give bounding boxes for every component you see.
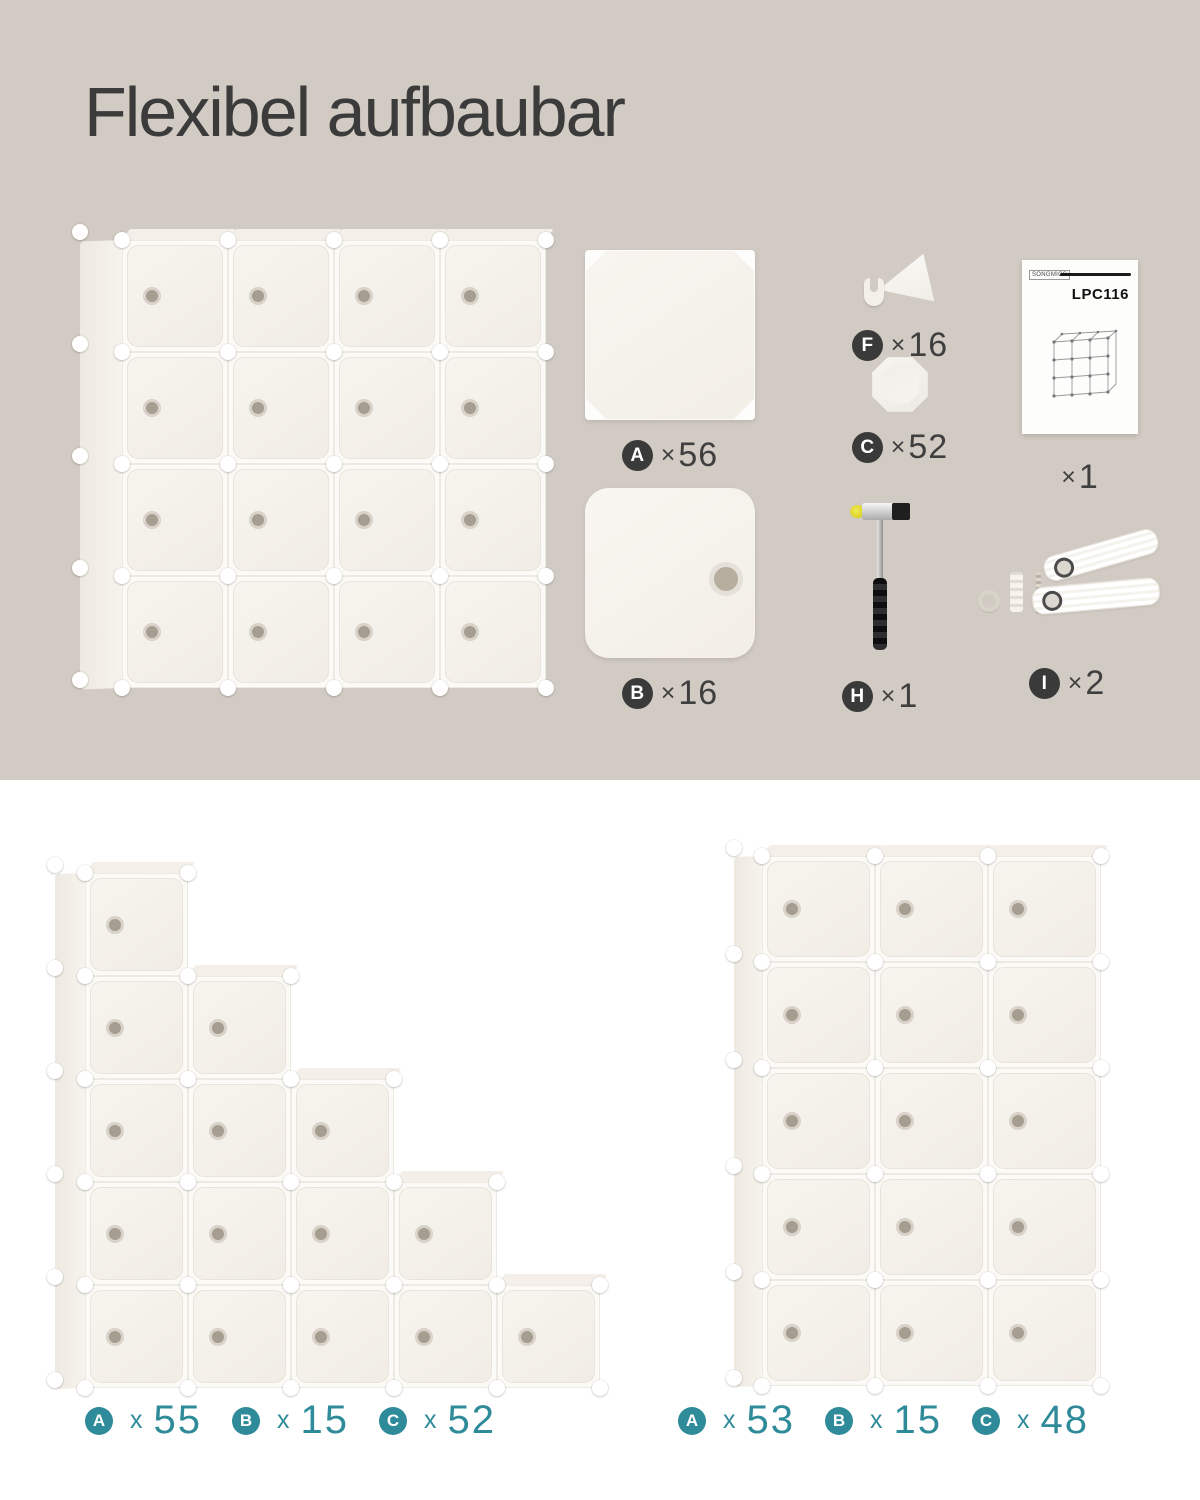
connector-dot xyxy=(867,1272,883,1288)
cube-door xyxy=(90,878,183,971)
multiply-symbol: x xyxy=(277,1406,290,1435)
shelf-top-panel xyxy=(988,845,1109,856)
cube-cell xyxy=(762,1068,875,1174)
door-handle-icon xyxy=(312,1328,330,1346)
cube-cell xyxy=(291,1079,394,1182)
connector-dot xyxy=(754,848,770,864)
door-handle-icon xyxy=(461,399,479,417)
cube-door xyxy=(127,245,223,347)
connector-dot xyxy=(326,344,342,360)
connector-dot xyxy=(538,232,554,248)
part-count: 55 xyxy=(154,1398,203,1443)
cube-cell xyxy=(122,352,228,464)
cube-door xyxy=(399,1290,492,1383)
cube-door xyxy=(993,1073,1096,1169)
door-handle-icon xyxy=(143,287,161,305)
strap-icon xyxy=(1031,576,1161,615)
cube-cell xyxy=(122,240,228,352)
connector-dot xyxy=(47,857,63,873)
straps-image xyxy=(972,540,1162,628)
door-handle-icon xyxy=(1009,1218,1027,1236)
connector-dot xyxy=(432,232,448,248)
connector-dot xyxy=(77,1071,93,1087)
cube-cell xyxy=(291,1182,394,1285)
legend-item-b: B x 15 xyxy=(232,1398,349,1443)
door-handle-icon xyxy=(249,287,267,305)
connector-dot xyxy=(114,568,130,584)
multiply-symbol: x xyxy=(870,1406,883,1435)
bottom-section: A x 55 B x 15 C x 52 A x 53 B x 15 C x xyxy=(0,780,1200,1500)
door-handle-icon xyxy=(209,1328,227,1346)
part-count: 53 xyxy=(747,1398,796,1443)
door-handle-icon xyxy=(415,1225,433,1243)
multiply-symbol: x xyxy=(723,1406,736,1435)
connector-dot xyxy=(489,1380,505,1396)
cube-cell xyxy=(988,962,1101,1068)
cube-door xyxy=(193,1084,286,1177)
connector-dot xyxy=(1093,1272,1109,1288)
cube-cell xyxy=(988,1174,1101,1280)
connector-dot xyxy=(1093,1378,1109,1394)
door-handle-icon xyxy=(1009,900,1027,918)
cube-cell xyxy=(440,352,546,464)
connector-dot xyxy=(220,568,236,584)
connector-dot xyxy=(538,568,554,584)
door-handle-icon xyxy=(896,1112,914,1130)
connector-dot xyxy=(432,456,448,472)
cube-cell xyxy=(188,1285,291,1388)
door-handle-icon xyxy=(355,623,373,641)
manual-header-line xyxy=(1060,273,1131,276)
door-handle-icon xyxy=(106,1122,124,1140)
connector-dot xyxy=(1093,954,1109,970)
connector-dot xyxy=(432,344,448,360)
cube-cell xyxy=(497,1285,600,1388)
cube-cell xyxy=(334,464,440,576)
hammer-label: H × 1 xyxy=(842,677,919,716)
cube-door xyxy=(193,981,286,1074)
multiply-symbol: × xyxy=(1068,669,1083,698)
door-handle-icon xyxy=(461,511,479,529)
tower-legend: A x 53 B x 15 C x 48 xyxy=(678,1398,1119,1443)
connector-dot xyxy=(114,232,130,248)
shelf-top-panel xyxy=(122,229,236,240)
letter-badge: A xyxy=(678,1407,706,1435)
door-handle-icon xyxy=(355,287,373,305)
connector-dot xyxy=(77,1277,93,1293)
cube-door xyxy=(296,1187,389,1280)
door-handle-icon xyxy=(461,623,479,641)
cube-door xyxy=(445,245,541,347)
connector-dot xyxy=(47,1166,63,1182)
connector-dot xyxy=(72,672,88,688)
connector-f-notch xyxy=(870,277,878,292)
cube-cell xyxy=(334,240,440,352)
connector-dot xyxy=(180,1380,196,1396)
connector-dot xyxy=(114,456,130,472)
connector-c-image xyxy=(840,356,960,416)
shelf-top-panel xyxy=(762,845,883,856)
cube-cell xyxy=(85,1079,188,1182)
door-handle-icon xyxy=(783,900,801,918)
cube-door xyxy=(90,1187,183,1280)
part-straps: I × 2 xyxy=(972,540,1162,703)
part-count: 15 xyxy=(894,1398,943,1443)
legend-item-b: B x 15 xyxy=(825,1398,942,1443)
cube-door xyxy=(445,357,541,459)
legend-item-c: C x 52 xyxy=(379,1398,496,1443)
cube-door xyxy=(233,245,329,347)
connector-dot xyxy=(283,1380,299,1396)
cube-door xyxy=(767,1179,870,1275)
connector-dot xyxy=(180,1174,196,1190)
top-section: Flexibel aufbaubar A × 56 B × 16 xyxy=(0,0,1200,780)
shelf-side-panel xyxy=(55,873,85,1389)
door-handle-icon xyxy=(106,1019,124,1037)
door-handle-icon xyxy=(312,1225,330,1243)
cube-cell xyxy=(122,576,228,688)
cube-cell xyxy=(291,1285,394,1388)
connector-dot xyxy=(592,1380,608,1396)
part-manual: SONGMICS LPC116 xyxy=(1005,252,1155,497)
cube-door xyxy=(233,469,329,571)
cube-cell xyxy=(762,1174,875,1280)
connector-dot xyxy=(114,344,130,360)
cube-cell xyxy=(228,352,334,464)
cube-door xyxy=(445,581,541,683)
door-handle-icon xyxy=(518,1328,536,1346)
connector-dot xyxy=(47,960,63,976)
connector-dot xyxy=(980,848,996,864)
cube-cell xyxy=(440,240,546,352)
cube-door xyxy=(767,1073,870,1169)
connector-dot xyxy=(114,680,130,696)
connector-dot xyxy=(1093,1166,1109,1182)
panel-a-image xyxy=(585,250,755,420)
connector-dot xyxy=(326,568,342,584)
legend-item-a: A x 55 xyxy=(85,1398,202,1443)
connector-dot xyxy=(754,1166,770,1182)
connector-dot xyxy=(220,680,236,696)
door-handle-icon xyxy=(783,1218,801,1236)
cube-cell xyxy=(394,1285,497,1388)
connector-dot xyxy=(754,1272,770,1288)
cube-door xyxy=(127,581,223,683)
connector-dot xyxy=(72,224,88,240)
part-count: 16 xyxy=(678,674,718,713)
connector-c-label: C × 52 xyxy=(852,428,948,467)
panel-a-label: A × 56 xyxy=(622,436,718,475)
connector-dot xyxy=(1093,1060,1109,1076)
connector-dot xyxy=(386,1277,402,1293)
cube-door xyxy=(399,1187,492,1280)
connector-dot xyxy=(386,1174,402,1190)
door-handle-icon xyxy=(783,1006,801,1024)
door-hole-icon xyxy=(709,562,743,596)
straps-label: I × 2 xyxy=(1029,664,1106,703)
cube-cell xyxy=(988,856,1101,962)
cube-cell xyxy=(334,576,440,688)
cube-door xyxy=(127,357,223,459)
cube-door xyxy=(193,1290,286,1383)
connector-dot xyxy=(726,1052,742,1068)
connector-dot xyxy=(754,1378,770,1394)
door-handle-icon xyxy=(209,1019,227,1037)
cube-cell xyxy=(188,1079,291,1182)
part-hammer: H × 1 xyxy=(820,495,940,716)
connector-dot xyxy=(980,1378,996,1394)
multiply-symbol: × xyxy=(1061,463,1076,492)
connector-dot xyxy=(592,1277,608,1293)
part-connector-c: C × 52 xyxy=(840,356,960,467)
letter-badge: A xyxy=(622,440,653,471)
grommet-icon xyxy=(1041,590,1063,612)
cube-cell xyxy=(988,1280,1101,1386)
manual-sheet: SONGMICS LPC116 xyxy=(1022,260,1138,434)
multiply-symbol: x xyxy=(1017,1406,1030,1435)
connector-f-hook xyxy=(864,278,884,306)
door-handle-icon xyxy=(461,287,479,305)
connector-dot xyxy=(47,1269,63,1285)
cube-cell xyxy=(875,1068,988,1174)
cube-door xyxy=(233,581,329,683)
connector-dot xyxy=(867,1378,883,1394)
part-connector-f: F × 16 xyxy=(840,252,960,365)
cube-door xyxy=(296,1084,389,1177)
cube-cell xyxy=(85,1182,188,1285)
shelf-side-panel xyxy=(734,856,762,1387)
door-handle-icon xyxy=(1009,1112,1027,1130)
cube-door xyxy=(767,967,870,1063)
cube-cell xyxy=(762,856,875,962)
door-handle-icon xyxy=(249,623,267,641)
door-handle-icon xyxy=(355,399,373,417)
panel-b-image xyxy=(585,488,755,658)
multiply-symbol: x xyxy=(424,1406,437,1435)
connector-dot xyxy=(283,1174,299,1190)
hammer-grip xyxy=(873,578,887,650)
cube-cell xyxy=(988,1068,1101,1174)
connector-dot xyxy=(726,840,742,856)
part-count: 2 xyxy=(1085,664,1105,703)
shelf-top-panel xyxy=(228,229,342,240)
legend-item-a: A x 53 xyxy=(678,1398,795,1443)
multiply-symbol: × xyxy=(891,433,906,462)
cube-door xyxy=(880,861,983,957)
part-count: 1 xyxy=(898,677,918,716)
connector-dot xyxy=(432,680,448,696)
cube-cell xyxy=(394,1182,497,1285)
door-handle-icon xyxy=(209,1225,227,1243)
multiply-symbol: x xyxy=(130,1406,143,1435)
connector-dot xyxy=(77,865,93,881)
door-handle-icon xyxy=(249,511,267,529)
cube-door xyxy=(339,357,435,459)
connector-dot xyxy=(180,865,196,881)
multiply-symbol: × xyxy=(661,679,676,708)
letter-badge: A xyxy=(85,1407,113,1435)
connector-dot xyxy=(72,448,88,464)
cube-cell xyxy=(188,976,291,1079)
door-handle-icon xyxy=(312,1122,330,1140)
door-handle-icon xyxy=(143,623,161,641)
cube-shelf-staircase xyxy=(85,873,600,1388)
connector-dot xyxy=(47,1372,63,1388)
cube-door xyxy=(193,1187,286,1280)
door-handle-icon xyxy=(415,1328,433,1346)
manual-image: SONGMICS LPC116 xyxy=(1005,252,1155,442)
connector-dot xyxy=(72,560,88,576)
cube-cell xyxy=(228,240,334,352)
multiply-symbol: × xyxy=(661,441,676,470)
manual-label: × 1 xyxy=(1061,458,1099,497)
connector-dot xyxy=(77,968,93,984)
wall-anchor-icon xyxy=(1010,572,1023,612)
letter-badge: C xyxy=(972,1407,1000,1435)
page-title: Flexibel aufbaubar xyxy=(84,72,624,152)
cube-cell xyxy=(440,464,546,576)
door-handle-icon xyxy=(896,1218,914,1236)
cube-door xyxy=(90,981,183,1074)
connector-f-wedge xyxy=(879,243,950,310)
connector-dot xyxy=(867,954,883,970)
cube-cell xyxy=(85,976,188,1079)
cube-door xyxy=(993,861,1096,957)
part-panel-b: B × 16 xyxy=(585,488,755,713)
connector-dot xyxy=(180,1277,196,1293)
connector-dot xyxy=(283,1277,299,1293)
connector-dot xyxy=(489,1174,505,1190)
cube-door xyxy=(445,469,541,571)
connector-dot xyxy=(538,456,554,472)
connector-dot xyxy=(726,1264,742,1280)
cube-cell xyxy=(875,856,988,962)
connector-dot xyxy=(180,968,196,984)
connector-dot xyxy=(220,456,236,472)
door-handle-icon xyxy=(209,1122,227,1140)
panel-a-face xyxy=(586,251,754,419)
cube-door xyxy=(993,967,1096,1063)
cube-shelf-tower xyxy=(762,856,1101,1386)
door-handle-icon xyxy=(143,399,161,417)
letter-badge: B xyxy=(622,678,653,709)
connector-dot xyxy=(980,954,996,970)
cube-door xyxy=(880,1179,983,1275)
staircase-legend: A x 55 B x 15 C x 52 xyxy=(85,1398,526,1443)
connector-dot xyxy=(726,1158,742,1174)
manual-wireframe-icon xyxy=(1042,322,1120,408)
connector-dot xyxy=(432,568,448,584)
cube-door xyxy=(767,861,870,957)
shelf-top-panel xyxy=(875,845,996,856)
connector-dot xyxy=(867,1166,883,1182)
connector-dot xyxy=(386,1071,402,1087)
connector-dot xyxy=(220,344,236,360)
connector-dot xyxy=(754,954,770,970)
hammer-head xyxy=(862,503,894,520)
cube-cell xyxy=(228,576,334,688)
door-handle-icon xyxy=(783,1324,801,1342)
connector-dot xyxy=(980,1166,996,1182)
shelf-top-panel xyxy=(334,229,448,240)
cube-door xyxy=(339,245,435,347)
letter-badge: I xyxy=(1029,668,1060,699)
hammer-image xyxy=(820,495,940,663)
shelf-top-panel xyxy=(440,229,554,240)
letter-badge: B xyxy=(232,1407,260,1435)
cube-door xyxy=(880,967,983,1063)
cube-cell xyxy=(85,1285,188,1388)
part-count: 15 xyxy=(301,1398,350,1443)
grommet-icon xyxy=(1052,555,1077,580)
connector-dot xyxy=(726,946,742,962)
letter-badge: C xyxy=(852,432,883,463)
cube-door xyxy=(90,1290,183,1383)
door-handle-icon xyxy=(249,399,267,417)
part-count: 52 xyxy=(448,1398,497,1443)
cube-door xyxy=(127,469,223,571)
multiply-symbol: × xyxy=(881,682,896,711)
cube-cell xyxy=(875,962,988,1068)
cube-door xyxy=(502,1290,595,1383)
cube-door xyxy=(880,1073,983,1169)
cube-door xyxy=(339,581,435,683)
door-handle-icon xyxy=(106,916,124,934)
connector-dot xyxy=(489,1277,505,1293)
connector-dot xyxy=(538,680,554,696)
connector-dot xyxy=(77,1380,93,1396)
door-handle-icon xyxy=(896,1006,914,1024)
cube-door xyxy=(880,1285,983,1381)
cube-cell xyxy=(334,352,440,464)
connector-dot xyxy=(726,1370,742,1386)
cube-cell xyxy=(122,464,228,576)
cube-cell xyxy=(440,576,546,688)
connector-dot xyxy=(220,232,236,248)
part-count: 48 xyxy=(1041,1398,1090,1443)
cube-shelf-4x4 xyxy=(122,240,546,688)
door-handle-icon xyxy=(1009,1324,1027,1342)
connector-dot xyxy=(180,1071,196,1087)
cube-door xyxy=(233,357,329,459)
connector-f-image xyxy=(840,252,960,314)
connector-dot xyxy=(326,456,342,472)
legend-item-c: C x 48 xyxy=(972,1398,1089,1443)
part-panel-a: A × 56 xyxy=(585,250,755,475)
cube-door xyxy=(90,1084,183,1177)
cube-door xyxy=(993,1179,1096,1275)
letter-badge: B xyxy=(825,1407,853,1435)
panel-b-label: B × 16 xyxy=(622,674,718,713)
cube-cell xyxy=(228,464,334,576)
hammer-shaft xyxy=(877,520,883,578)
door-handle-icon xyxy=(143,511,161,529)
cube-door xyxy=(296,1290,389,1383)
cube-door xyxy=(339,469,435,571)
connector-c-octagon xyxy=(871,356,929,413)
door-handle-icon xyxy=(783,1112,801,1130)
door-handle-icon xyxy=(106,1225,124,1243)
connector-dot xyxy=(867,848,883,864)
connector-dot xyxy=(980,1060,996,1076)
strap-icon xyxy=(1041,526,1162,584)
part-count: 56 xyxy=(678,436,718,475)
cube-cell xyxy=(188,1182,291,1285)
door-handle-icon xyxy=(355,511,373,529)
cube-door xyxy=(993,1285,1096,1381)
connector-dot xyxy=(538,344,554,360)
connector-dot xyxy=(326,680,342,696)
